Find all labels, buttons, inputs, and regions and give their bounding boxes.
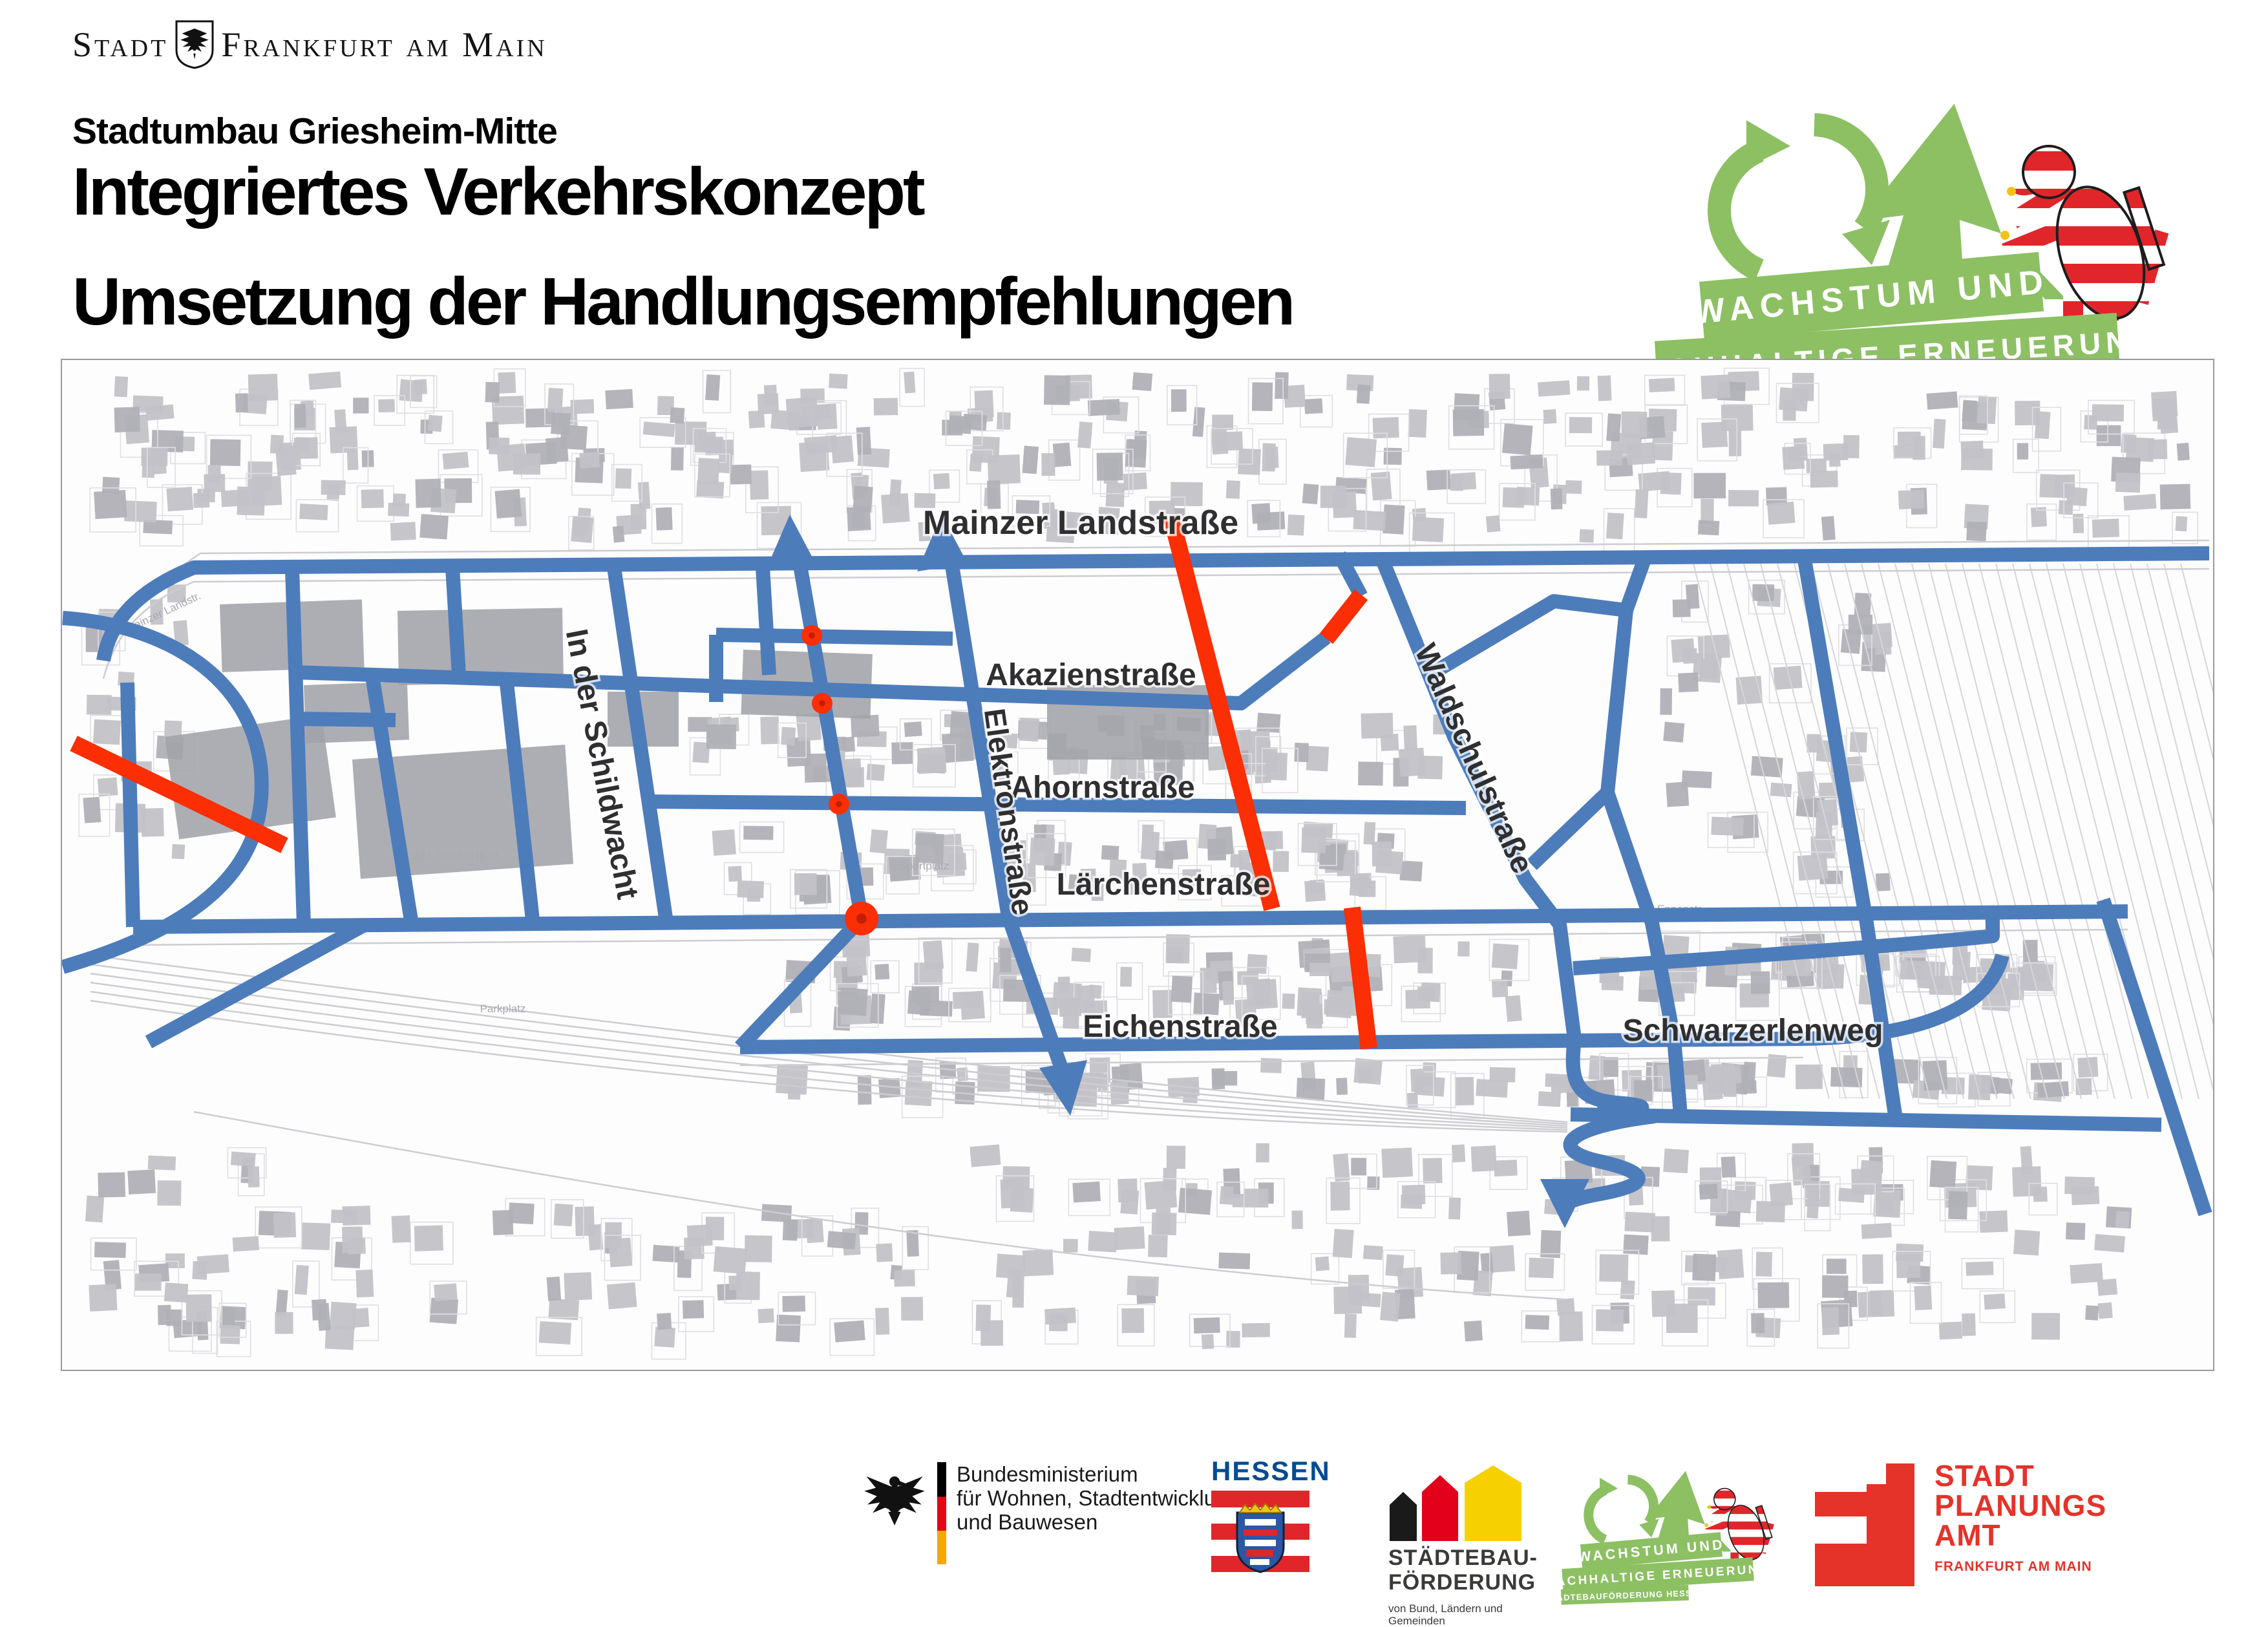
street-label-laerchenstrasse: Lärchenstraße xyxy=(1057,867,1271,902)
micro-label: Sportplatz xyxy=(900,860,949,872)
staedtebaufoerderung-logo: STÄDTEBAU- FÖRDERUNG von Bund, Ländern u… xyxy=(1388,1465,1538,1627)
micro-label: Parkplatz xyxy=(480,1003,526,1015)
hessen-logo: HESSEN xyxy=(1211,1456,1331,1592)
street-label-mainzer-landstrasse: Mainzer Landstraße xyxy=(923,504,1238,542)
measure-dot-core xyxy=(836,801,842,807)
spa-line3: AMT xyxy=(1934,1520,2106,1550)
street-label-akazienstrasse: Akazienstraße xyxy=(986,658,1196,692)
west-v5-upper xyxy=(763,568,769,675)
stb-small1: von Bund, Ländern und xyxy=(1388,1602,1538,1615)
measure-dot-core xyxy=(819,700,825,707)
west-v2-upper xyxy=(452,568,459,675)
street-label-schwarzerlenweg: Schwarzerlenweg xyxy=(1623,1014,1883,1048)
upper-short-h xyxy=(716,635,953,639)
west-h-short xyxy=(294,719,396,720)
bmwsb-line1: Bundesministerium xyxy=(957,1462,1240,1486)
spa-sub: FRANKFURT AM MAIN xyxy=(1934,1559,2106,1575)
bundesadler-icon xyxy=(862,1462,927,1537)
stadtplanungsamt-icon xyxy=(1815,1461,1915,1587)
bmwsb-logo: Bundesministerium für Wohnen, Stadtentwi… xyxy=(862,1462,1240,1564)
spa-line2: PLANUNGS xyxy=(1934,1491,2106,1520)
wachstum-logo-small xyxy=(1559,1460,1782,1605)
bmwsb-text: Bundesministerium für Wohnen, Stadtentwi… xyxy=(957,1462,1240,1564)
micro-label: GEM. GRIESHEIM xyxy=(406,850,499,862)
west-connector xyxy=(127,683,133,927)
hessen-arms-icon xyxy=(1211,1491,1309,1589)
street-label-ahornstrasse: Ahornstraße xyxy=(1010,771,1194,805)
bmwsb-line3: und Bauwesen xyxy=(957,1510,1240,1534)
tricolor-bar xyxy=(937,1462,946,1564)
measure-dot-core xyxy=(856,913,867,924)
houses-icon xyxy=(1388,1465,1524,1542)
stb-line1: STÄDTEBAU- xyxy=(1388,1546,1538,1570)
right-street-south xyxy=(1674,1039,1680,1114)
traffic-concept-map: Mainzer Landstr.GEM. GRIESHEIMParkplatzS… xyxy=(0,0,2268,1603)
stb-line2: FÖRDERUNG xyxy=(1388,1570,1538,1595)
street-label-eichenstrasse: Eichenstraße xyxy=(1083,1010,1277,1044)
poster-page: { "header": { "city_left": "Stadt", "cit… xyxy=(0,0,2268,1603)
bmwsb-line2: für Wohnen, Stadtentwicklung xyxy=(957,1486,1240,1510)
spa-line1: STADT xyxy=(1934,1461,2106,1491)
measure-dot-core xyxy=(809,632,815,639)
stb-small2: Gemeinden xyxy=(1388,1615,1538,1627)
stadtplanungsamt-logo: STADT PLANUNGS AMT FRANKFURT AM MAIN xyxy=(1815,1461,2106,1587)
hessen-title: HESSEN xyxy=(1211,1456,1331,1487)
